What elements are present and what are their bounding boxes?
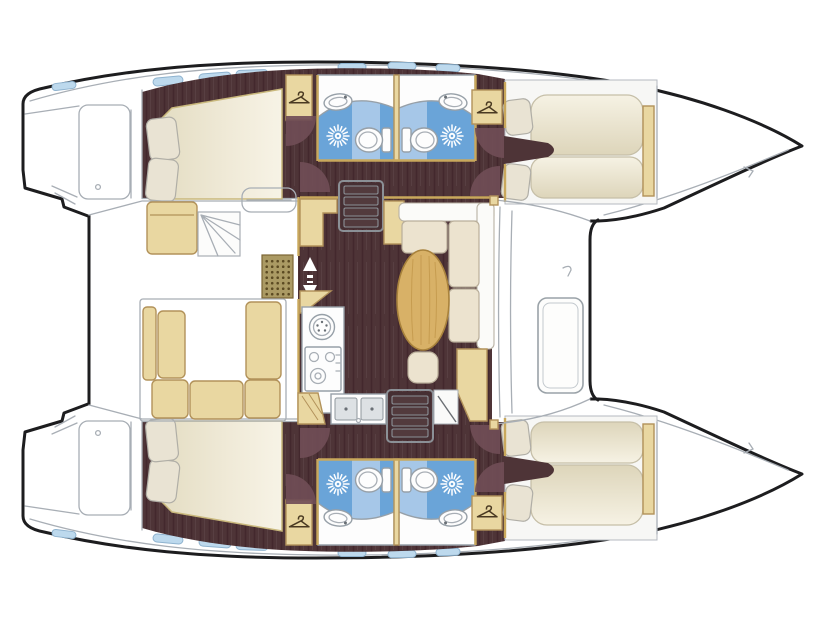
settee-cushion <box>143 307 156 380</box>
stove-burners-icon <box>305 347 341 391</box>
sofa-cushion <box>402 221 447 253</box>
catamaran-floor-plan <box>0 0 828 621</box>
cockpit-steps <box>198 212 240 256</box>
trampoline-beam <box>590 220 598 400</box>
settee-cushion <box>158 311 185 378</box>
salon <box>298 181 494 442</box>
deck-grate-icon <box>262 255 293 298</box>
companionway-stairs <box>387 390 433 442</box>
sofa-cushion <box>449 221 479 287</box>
settee-cushion <box>245 380 280 418</box>
cockpit-settee <box>143 302 281 419</box>
foredeck-door <box>538 298 583 393</box>
round-sink-icon <box>310 315 335 340</box>
settee-cushion <box>190 381 243 419</box>
settee-cushion <box>152 380 188 418</box>
side-deck <box>490 196 590 429</box>
double-sink-icon <box>331 394 386 424</box>
hull-entry <box>434 390 458 424</box>
floor-plan-canvas <box>0 0 828 621</box>
sofa-cushion <box>449 289 479 342</box>
stool <box>408 352 438 383</box>
cockpit <box>89 188 298 421</box>
cockpit-bench <box>147 202 197 254</box>
settee-cushion <box>246 302 281 379</box>
companionway-stairs <box>339 181 383 231</box>
dining-table <box>397 250 449 350</box>
